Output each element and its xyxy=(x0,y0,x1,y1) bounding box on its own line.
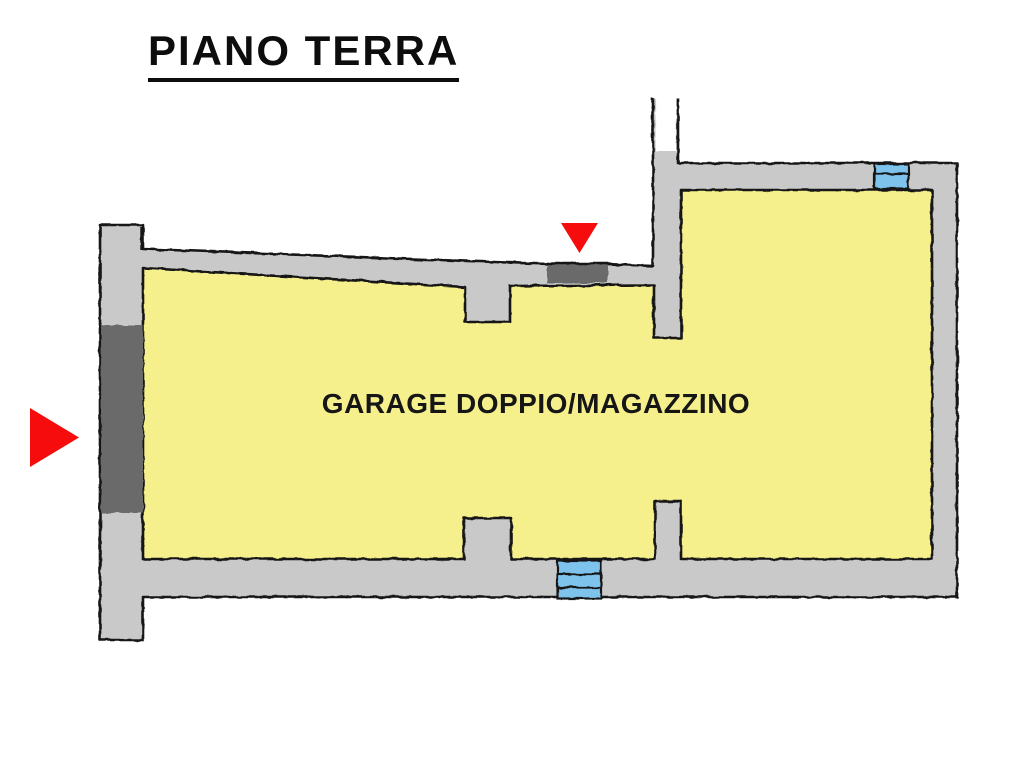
floor-plan-canvas: GARAGE DOPPIO/MAGAZZINO xyxy=(0,0,1024,768)
side-entrance-arrow-icon xyxy=(30,408,79,467)
plan-drawing xyxy=(100,87,957,640)
window-bottom xyxy=(558,561,602,599)
wall-cutout xyxy=(656,96,677,151)
floor-plan-page: PIANO TERRA xyxy=(0,0,1024,768)
room-label: GARAGE DOPPIO/MAGAZZINO xyxy=(322,388,750,419)
garage-room-floor xyxy=(143,190,932,559)
window-top-right xyxy=(875,164,909,189)
top-entrance-door xyxy=(547,263,608,283)
left-garage-door xyxy=(102,325,144,513)
top-entrance-arrow-icon xyxy=(561,223,598,253)
